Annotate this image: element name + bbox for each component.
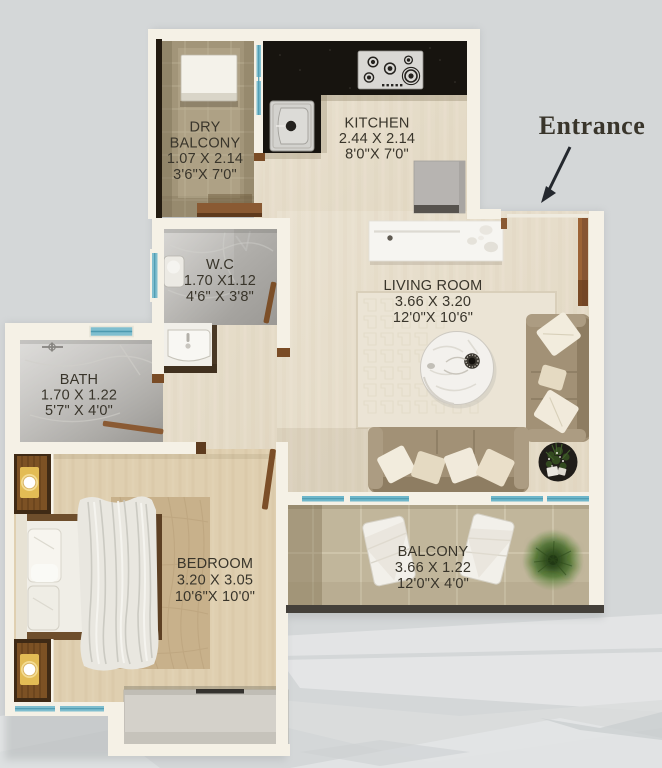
svg-text:BALCONY: BALCONY <box>170 135 241 151</box>
svg-text:3'6"X 7'0": 3'6"X 7'0" <box>173 167 237 183</box>
svg-text:3.20 X 3.05: 3.20 X 3.05 <box>177 573 253 589</box>
svg-text:2.44 X 2.14: 2.44 X 2.14 <box>339 131 415 147</box>
svg-text:1.07 X 2.14: 1.07 X 2.14 <box>167 151 243 167</box>
svg-text:12'0"X 10'6": 12'0"X 10'6" <box>393 310 473 326</box>
svg-text:10'6"X 10'0": 10'6"X 10'0" <box>175 589 255 605</box>
svg-text:8'0"X 7'0": 8'0"X 7'0" <box>345 147 409 163</box>
svg-text:LIVING ROOM: LIVING ROOM <box>384 278 483 294</box>
svg-text:BALCONY: BALCONY <box>398 544 469 560</box>
svg-text:1.70 X1.12: 1.70 X1.12 <box>184 273 256 289</box>
svg-text:4'6" X 3'8": 4'6" X 3'8" <box>186 289 254 305</box>
svg-text:12'0"X 4'0": 12'0"X 4'0" <box>397 576 469 592</box>
svg-text:3.66 X 3.20: 3.66 X 3.20 <box>395 294 471 310</box>
svg-text:KITCHEN: KITCHEN <box>344 115 409 131</box>
svg-text:BEDROOM: BEDROOM <box>177 556 253 572</box>
svg-text:W.C: W.C <box>206 257 234 273</box>
svg-text:1.70 X 1.22: 1.70 X 1.22 <box>41 388 117 404</box>
svg-text:3.66 X 1.22: 3.66 X 1.22 <box>395 560 471 576</box>
svg-text:5'7" X 4'0": 5'7" X 4'0" <box>45 403 113 419</box>
svg-text:DRY: DRY <box>190 120 221 136</box>
svg-text:BATH: BATH <box>60 372 98 388</box>
svg-text:Entrance: Entrance <box>539 111 646 140</box>
